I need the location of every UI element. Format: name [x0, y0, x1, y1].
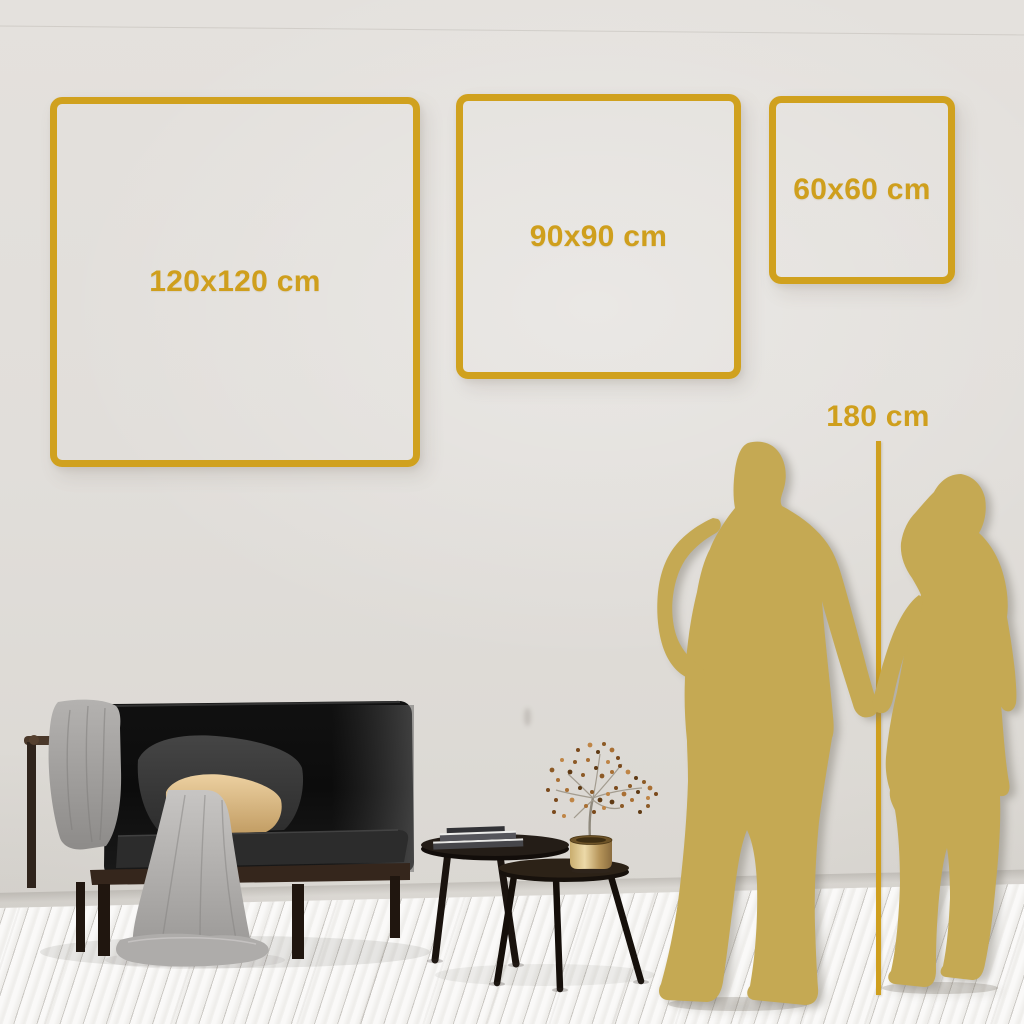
blanket-on-arm	[49, 700, 122, 850]
woman-silhouette	[873, 474, 1017, 987]
ceiling-line	[0, 25, 1024, 35]
size-frame-90: 90x90 cm	[456, 94, 741, 379]
height-marker-label: 180 cm	[795, 400, 961, 434]
couple-silhouettes	[620, 430, 1024, 1024]
books	[433, 825, 524, 849]
size-frame-60: 60x60 cm	[769, 96, 955, 284]
size-frame-60-label: 60x60 cm	[793, 173, 931, 207]
size-frame-90-label: 90x90 cm	[530, 220, 668, 254]
sofa	[24, 700, 414, 967]
room-photo	[0, 690, 690, 1024]
size-frame-120-label: 120x120 cm	[149, 265, 321, 299]
sofa-arm-post	[27, 742, 36, 888]
man-silhouette	[657, 442, 877, 1005]
size-guide-scene: 120x120 cm 90x90 cm 60x60 cm 180 cm	[0, 0, 1024, 1024]
blanket-floor-pool	[116, 934, 269, 967]
size-frame-120: 120x120 cm	[50, 97, 420, 467]
